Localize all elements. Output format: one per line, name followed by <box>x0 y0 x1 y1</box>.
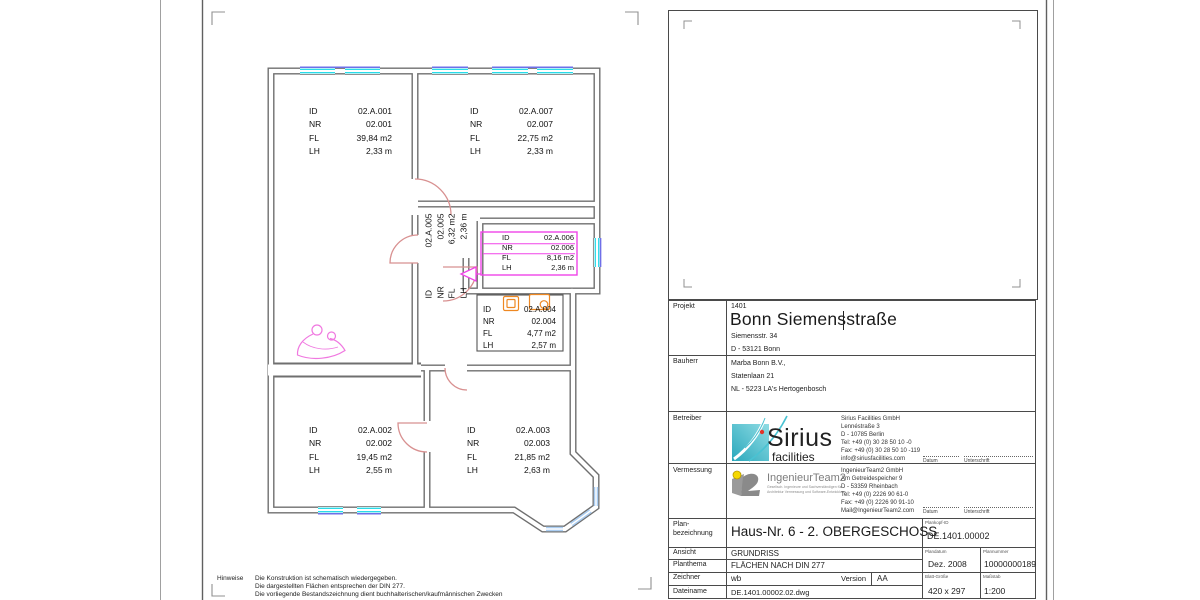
plan-title: Haus-Nr. 6 - 2. OBERGESCHOSS <box>731 524 937 539</box>
planthema-value: FLÄCHEN NACH DIN 277 <box>731 561 825 570</box>
divider <box>668 300 1036 301</box>
unterschrift-signature-line: Unterschrift <box>964 507 1033 515</box>
betreiber-city: D - 10785 Berlin <box>841 432 884 440</box>
room-row: NR02.002 <box>309 437 392 450</box>
divider <box>668 598 1036 599</box>
hinweise-line-2: Die dargestellten Flächen entsprechen de… <box>255 583 405 591</box>
room-row: ID02.A.001 <box>309 105 392 118</box>
room-row: LH2,57 m <box>483 340 556 352</box>
bauherr-street: Statenlaan 21 <box>731 373 774 381</box>
unterschrift-signature-line: Unterschrift <box>964 456 1033 464</box>
room-row: ID02.A.005 <box>424 214 436 299</box>
planthema-label: Planthema <box>673 561 706 569</box>
room-row: LH2,55 m <box>309 464 392 477</box>
ingenieurteam2-tagline2: Architektur Vermessung und Software-Entw… <box>767 490 846 494</box>
room-row: LH2,63 m <box>467 464 550 477</box>
massstab-label: Maßstab <box>983 574 1001 579</box>
plannummer-label: Plannummer <box>983 549 1009 554</box>
vermessung-city: D - 53359 Rheinbach <box>841 484 898 492</box>
planbezeichnung-label-2: bezeichnung <box>673 530 713 538</box>
vermessung-fax: Fax: +49 (0) 2226 90 91-10 <box>841 500 914 508</box>
divider <box>668 411 1036 412</box>
version-value: AA <box>877 574 888 583</box>
version-label: Version <box>841 575 866 583</box>
plankopf-id-label: Plankopf-ID <box>925 520 949 525</box>
room-row: NR02.004 <box>483 316 556 328</box>
room-row: LH2,33 m <box>309 145 392 158</box>
betreiber-email: info@siriusfacilities.com <box>841 456 905 464</box>
room-row: FL19,45 m2 <box>309 451 392 464</box>
room-row: NR02.005 <box>435 214 447 299</box>
room-row: FL21,85 m2 <box>467 451 550 464</box>
divider <box>668 585 922 586</box>
fan-symbol <box>297 325 345 358</box>
room-row: FL8,16 m2 <box>502 253 574 263</box>
room-row: ID02.A.004 <box>483 304 556 316</box>
projekt-label: Projekt <box>673 303 695 311</box>
room-row: NR02.006 <box>502 243 574 253</box>
divider <box>726 300 727 598</box>
hinweise-line-3: Die vorliegende Bestandszeichnung dient … <box>255 591 503 599</box>
blattgroesse-value: 420 x 297 <box>928 586 965 596</box>
projekt-title[interactable]: Bonn Siemensstraße <box>730 309 897 330</box>
plandatum-label: Plandatum <box>925 549 947 554</box>
betreiber-tel: Tel: +49 (0) 30 28 50 10 -0 <box>841 440 912 448</box>
room-row: NR02.003 <box>467 437 550 450</box>
room-row: NR02.001 <box>309 118 392 131</box>
projekt-city: D - 53121 Bonn <box>731 346 780 354</box>
room-row: LH2,33 m <box>470 145 553 158</box>
room-row: FL22,75 m2 <box>470 132 553 145</box>
betreiber-fax: Fax: +49 (0) 30 28 50 10 -119 <box>841 448 920 456</box>
room-row: LH2,36 m <box>502 263 574 273</box>
hinweise-line-1: Die Konstruktion ist schematisch wiederg… <box>255 575 397 583</box>
bauherr-name: Marba Bonn B.V., <box>731 360 786 368</box>
divider <box>980 547 981 598</box>
divider <box>668 355 1036 356</box>
room-row: ID02.A.002 <box>309 424 392 437</box>
divider <box>668 518 1036 519</box>
planbezeichnung-label-1: Plan- <box>673 521 689 529</box>
divider <box>668 300 669 598</box>
divider <box>1035 300 1036 598</box>
zeichner-label: Zeichner <box>673 574 700 582</box>
ingenieurteam2-logo-icon <box>729 469 765 499</box>
plannummer-value: 10000000189 <box>984 559 1036 569</box>
titleblock-empty-panel <box>668 10 1038 300</box>
room-label-02a004: ID02.A.004 NR02.004 FL4,77 m2 LH2,57 m <box>483 304 556 352</box>
datum-signature-line: Datum <box>923 507 959 515</box>
room-label-02a007: ID02.A.007 NR02.007 FL22,75 m2 LH2,33 m <box>470 105 553 159</box>
plandatum-value: Dez. 2008 <box>928 559 967 569</box>
projekt-street: Siemensstr. 34 <box>731 333 777 341</box>
dateiname-label: Dateiname <box>673 588 707 596</box>
room-label-02a001: ID02.A.001 NR02.001 FL39,84 m2 LH2,33 m <box>309 105 392 159</box>
room-label-02a002: ID02.A.002 NR02.002 FL19,45 m2 LH2,55 m <box>309 424 392 478</box>
zeichner-value: wb <box>731 574 741 583</box>
bauherr-label: Bauherr <box>673 358 698 366</box>
room-label-02a005: ID02.A.005 NR02.005 FL6,32 m2 LH2,36 m <box>424 214 470 299</box>
room-row: ID02.A.007 <box>470 105 553 118</box>
vermessung-tel: Tel: +49 (0) 2226 90 61-0 <box>841 492 908 500</box>
betreiber-company: Sirius Facilities GmbH <box>841 416 900 424</box>
room-row: LH2,36 m <box>458 214 470 299</box>
ansicht-label: Ansicht <box>673 549 696 557</box>
betreiber-street: Lennéstraße 3 <box>841 424 880 432</box>
room-row: FL4,77 m2 <box>483 328 556 340</box>
room-label-02a006: ID02.A.006 NR02.006 FL8,16 m2 LH2,36 m <box>502 233 574 273</box>
divider <box>871 572 872 585</box>
massstab-value: 1:200 <box>984 586 1005 596</box>
vermessung-company: IngenieurTeam2 GmbH <box>841 468 903 476</box>
room-label-02a003: ID02.A.003 NR02.003 FL21,85 m2 LH2,63 m <box>467 424 550 478</box>
ingenieurteam2-wordmark: IngenieurTeam2 <box>767 472 846 484</box>
vermessung-street: Am Getreidespeicher 9 <box>841 476 902 484</box>
blattgroesse-label: Blatt-Größe <box>925 574 948 579</box>
room-row: ID02.A.006 <box>502 233 574 243</box>
betreiber-label: Betreiber <box>673 415 701 423</box>
vermessung-email: Mail@IngenieurTeam2.com <box>841 508 914 516</box>
vermessung-label: Vermessung <box>673 467 712 475</box>
dateiname-value: DE.1401.00002.02.dwg <box>731 588 809 597</box>
room-row: FL39,84 m2 <box>309 132 392 145</box>
room-row: FL6,32 m2 <box>447 214 459 299</box>
room-row: NR02.007 <box>470 118 553 131</box>
ansicht-value: GRUNDRISS <box>731 549 779 558</box>
hinweise-label: Hinweise <box>217 575 243 583</box>
plankopf-id-value: DE.1401.00002 <box>927 531 990 541</box>
bauherr-city: NL - 5223 LA's Hertogenbosch <box>731 386 826 394</box>
sirius-logo-wordmark: Sirius <box>767 424 833 453</box>
drawing-sheet: { "plan": { "labels": {"id": "ID", "nr":… <box>0 0 1200 600</box>
sirius-logo-sub: facilities <box>772 450 815 464</box>
room-row: ID02.A.003 <box>467 424 550 437</box>
datum-signature-line: Datum <box>923 456 959 464</box>
text-cursor <box>843 311 844 330</box>
bay-windows <box>546 487 596 529</box>
